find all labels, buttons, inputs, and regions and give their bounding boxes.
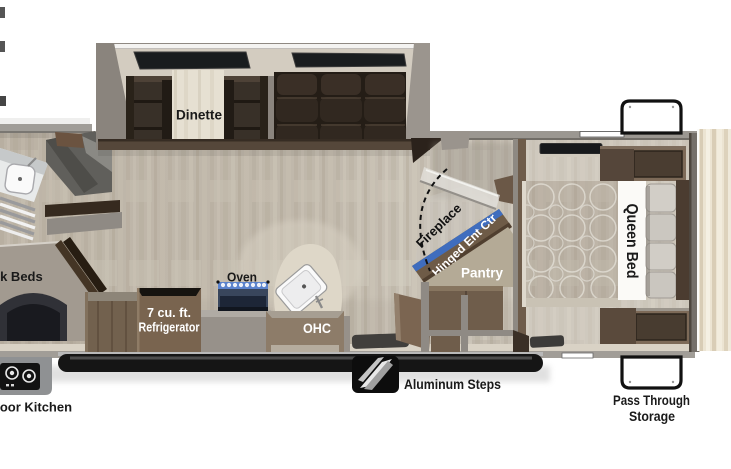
svg-text:Dinette: Dinette <box>176 107 222 123</box>
svg-text:Oven: Oven <box>227 270 257 285</box>
svg-text:Refrigerator: Refrigerator <box>139 321 200 335</box>
svg-text:7 cu. ft.: 7 cu. ft. <box>147 305 191 320</box>
svg-text:Aluminum Steps: Aluminum Steps <box>404 376 501 392</box>
svg-text:Outdoor Kitchen: Outdoor Kitchen <box>0 400 72 415</box>
svg-text:Bunk Beds: Bunk Beds <box>0 269 43 284</box>
svg-text:Storage: Storage <box>629 408 675 424</box>
svg-text:Queen Bed: Queen Bed <box>623 204 640 279</box>
svg-text:OHC: OHC <box>303 320 331 336</box>
svg-text:Pantry: Pantry <box>461 265 503 281</box>
svg-text:Pass Through: Pass Through <box>613 392 690 408</box>
